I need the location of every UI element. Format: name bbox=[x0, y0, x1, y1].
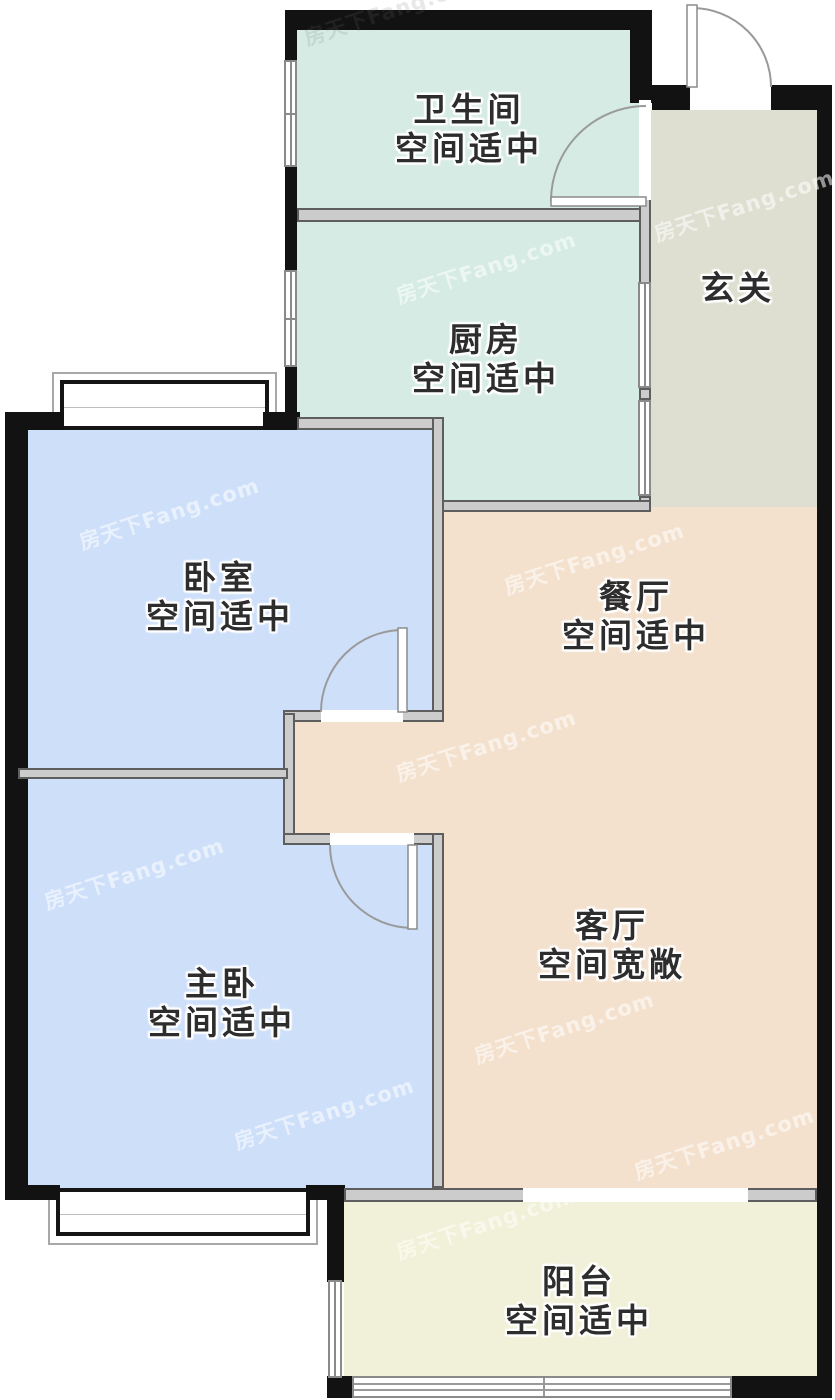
wall bbox=[297, 208, 648, 222]
room-name: 卫生间 bbox=[395, 90, 543, 129]
room-label-master: 主卧 空间适中 bbox=[144, 964, 296, 1042]
wall bbox=[5, 1185, 60, 1200]
room-label-dining: 餐厅 空间适中 bbox=[558, 577, 710, 655]
wall bbox=[285, 167, 297, 272]
window bbox=[638, 400, 651, 496]
wall bbox=[18, 768, 288, 779]
room-label-entrance: 玄关 bbox=[697, 269, 775, 308]
room-name: 主卧 bbox=[148, 964, 296, 1003]
wall bbox=[283, 713, 295, 845]
room-desc: 空间适中 bbox=[505, 1301, 653, 1340]
slider-opening bbox=[523, 1188, 748, 1202]
room-name: 阳台 bbox=[505, 1262, 653, 1301]
door-opening bbox=[330, 833, 414, 845]
room-label-bedroom: 卧室 空间适中 bbox=[142, 558, 294, 636]
floor-plan: 卫生间 空间适中 玄关 厨房 空间适中 卧室 空间适中 餐厅 空间适中 主卧 空… bbox=[0, 0, 835, 1400]
window bbox=[328, 1280, 342, 1378]
room-label-balcony: 阳台 空间适中 bbox=[501, 1262, 653, 1340]
room-label-living: 客厅 空间宽敞 bbox=[534, 906, 686, 984]
door-opening bbox=[639, 100, 651, 200]
room-desc: 空间宽敞 bbox=[538, 945, 686, 984]
bay-window-frame bbox=[60, 380, 269, 430]
wall bbox=[730, 1376, 832, 1398]
wall bbox=[285, 10, 297, 62]
wall bbox=[432, 417, 444, 722]
room-desc: 空间适中 bbox=[146, 597, 294, 636]
door-opening bbox=[321, 710, 403, 722]
entrance-door bbox=[687, 5, 771, 87]
room-desc: 空间适中 bbox=[412, 359, 560, 398]
wall bbox=[5, 412, 28, 1200]
window bbox=[284, 270, 297, 367]
wall bbox=[639, 198, 651, 284]
wall bbox=[432, 833, 444, 1188]
wall bbox=[652, 85, 690, 110]
room-name: 卧室 bbox=[146, 558, 294, 597]
wall bbox=[639, 388, 651, 400]
room-name: 玄关 bbox=[701, 269, 775, 308]
wall bbox=[630, 12, 652, 103]
room-label-bathroom: 卫生间 空间适中 bbox=[391, 90, 543, 168]
room-desc: 空间适中 bbox=[562, 616, 710, 655]
window bbox=[638, 282, 651, 388]
room-name: 客厅 bbox=[538, 906, 686, 945]
entrance-floor bbox=[651, 110, 817, 507]
balcony-window-band bbox=[352, 1376, 732, 1398]
wall bbox=[438, 500, 651, 512]
room-name: 厨房 bbox=[412, 320, 560, 359]
wall bbox=[817, 85, 832, 1398]
wall bbox=[327, 1376, 352, 1398]
wall bbox=[327, 1185, 344, 1282]
window bbox=[284, 60, 297, 167]
room-name: 餐厅 bbox=[562, 577, 710, 616]
room-desc: 空间适中 bbox=[148, 1003, 296, 1042]
bay-window-frame bbox=[56, 1188, 310, 1236]
wall bbox=[297, 417, 444, 430]
wall bbox=[285, 10, 652, 30]
hallway-recess-floor bbox=[290, 715, 444, 840]
room-label-kitchen: 厨房 空间适中 bbox=[408, 320, 560, 398]
room-desc: 空间适中 bbox=[395, 129, 543, 168]
wall bbox=[263, 412, 300, 430]
